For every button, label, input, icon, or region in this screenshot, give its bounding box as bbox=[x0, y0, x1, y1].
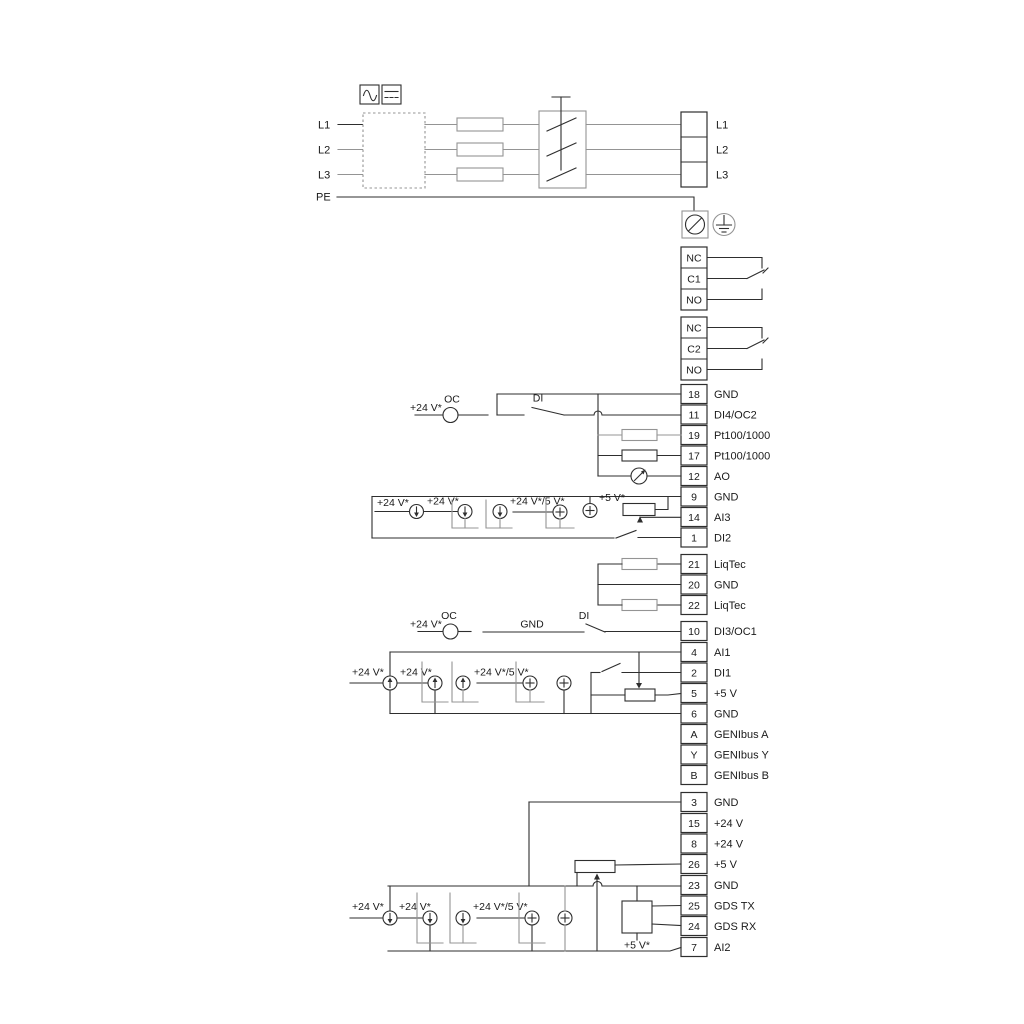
terminal-row: AGENIbus A bbox=[681, 725, 769, 744]
fuse-symbols bbox=[425, 118, 539, 181]
terminal-number: Y bbox=[690, 750, 697, 762]
gds-sensor-box: +5 V* bbox=[622, 886, 681, 952]
wire bbox=[655, 497, 668, 510]
terminal-row: 10DI3/OC1 bbox=[681, 622, 757, 641]
supply-label: +24 V* bbox=[352, 901, 384, 913]
power-right-label-l3: L3 bbox=[716, 170, 728, 182]
supply-label: +5 V* bbox=[599, 492, 625, 504]
potentiometer-symbol bbox=[591, 652, 681, 701]
power-output-wires bbox=[586, 125, 681, 175]
terminal-label: DI4/OC2 bbox=[714, 410, 757, 422]
terminal-label: GND bbox=[714, 492, 739, 504]
relay2-nc: NC bbox=[686, 323, 702, 335]
terminal-row: 25GDS TX bbox=[681, 896, 755, 915]
terminal-number: 5 bbox=[691, 688, 697, 700]
terminal-group-2: 10DI3/OC1 4AI1 2DI1 5+5 V 6GND AGENIbus … bbox=[681, 622, 769, 785]
terminal-number: 11 bbox=[689, 410, 700, 422]
terminal-number: 4 bbox=[691, 647, 697, 659]
terminal-number: 22 bbox=[688, 600, 700, 612]
relay1-no: NO bbox=[686, 295, 702, 307]
terminal-label: GDS RX bbox=[714, 921, 757, 933]
current-source-down-icon bbox=[423, 911, 437, 925]
current-source-plus-icon bbox=[525, 911, 539, 925]
ac-icon bbox=[360, 85, 379, 104]
oc-label: OC bbox=[444, 394, 460, 406]
relay1-c1: C1 bbox=[687, 274, 701, 286]
relay2-changeover-icon bbox=[708, 328, 768, 370]
analog-meter-icon bbox=[631, 468, 647, 484]
liqtec-sensor-wiring bbox=[598, 559, 681, 611]
supply-label: +24 V* bbox=[427, 496, 459, 508]
relay2-c2: C2 bbox=[687, 344, 701, 356]
current-source-plus-icon bbox=[558, 911, 572, 925]
terminal-row: 18GND bbox=[681, 385, 739, 404]
terminal-row: 6GND bbox=[681, 704, 739, 723]
terminal-number: 9 bbox=[691, 492, 697, 504]
terminal-number: 20 bbox=[688, 580, 700, 592]
terminal-label: DI2 bbox=[714, 533, 731, 545]
terminal-row: 2DI1 bbox=[681, 663, 731, 682]
terminal-number: 18 bbox=[688, 389, 700, 401]
di-label: DI bbox=[579, 610, 590, 622]
terminal-label: DI3/OC1 bbox=[714, 626, 757, 638]
terminal-row: 4AI1 bbox=[681, 643, 731, 662]
terminal-number: 3 bbox=[691, 797, 697, 809]
terminal-label: Pt100/1000 bbox=[714, 451, 770, 463]
wiring-diagram: L1 L2 L3 PE bbox=[0, 0, 1024, 1024]
supply-label: +24 V* bbox=[377, 497, 409, 509]
terminal-label: GDS TX bbox=[714, 901, 755, 913]
power-right-label-l1: L1 bbox=[716, 120, 728, 132]
relay2-no: NO bbox=[686, 365, 702, 377]
power-left-label-l3: L3 bbox=[318, 170, 330, 182]
terminal-label: AI1 bbox=[714, 647, 731, 659]
terminal-number: 17 bbox=[688, 451, 700, 463]
relay-2-block: NC C2 NO bbox=[681, 317, 768, 380]
wire bbox=[564, 411, 681, 415]
terminal-label: GND bbox=[714, 797, 739, 809]
earth-ground-icon bbox=[713, 214, 735, 236]
terminal-row: 5+5 V bbox=[681, 684, 738, 703]
relay1-nc: NC bbox=[686, 253, 702, 265]
terminal-number: 1 bbox=[691, 533, 697, 545]
supply-label: +5 V* bbox=[624, 940, 650, 952]
terminal-label: +5 V bbox=[714, 688, 738, 700]
emc-filter-box bbox=[360, 85, 425, 188]
terminal-row: 17Pt100/1000 bbox=[681, 446, 770, 465]
current-source-plus-icon bbox=[583, 504, 597, 518]
terminal-label: +5 V bbox=[714, 859, 738, 871]
terminal-number: 15 bbox=[688, 818, 700, 830]
potentiometer-symbol bbox=[623, 504, 655, 523]
terminal-row: 14AI3 bbox=[681, 508, 731, 527]
current-source-plus-icon bbox=[553, 505, 567, 519]
terminal-number: 2 bbox=[691, 668, 697, 680]
terminal-row: 19Pt100/1000 bbox=[681, 426, 770, 445]
terminal-row: 8+24 V bbox=[681, 834, 744, 853]
group3-wiring: +24 V* +24 V* +24 V*/5 V* bbox=[350, 802, 681, 952]
terminal-label: GENIbus Y bbox=[714, 750, 769, 762]
pt100-sensor-icon bbox=[622, 450, 657, 461]
terminal-number: 24 bbox=[688, 921, 700, 933]
supply-label: +24 V* bbox=[410, 619, 442, 631]
switch-contact-icon bbox=[532, 408, 564, 416]
terminal-number: 26 bbox=[688, 859, 700, 871]
terminal-row: 23GND bbox=[681, 876, 739, 895]
terminal-number: 12 bbox=[688, 471, 700, 483]
current-source-up-icon bbox=[428, 676, 442, 690]
terminal-label: +24 V bbox=[714, 818, 744, 830]
liqtec-group: 21LiqTec 20GND 22LiqTec bbox=[598, 555, 746, 615]
terminal-label: Pt100/1000 bbox=[714, 430, 770, 442]
terminal-label: GENIbus A bbox=[714, 729, 769, 741]
terminal-row: 24GDS RX bbox=[681, 917, 757, 936]
terminal-row: 22LiqTec bbox=[681, 596, 746, 615]
wire bbox=[388, 882, 681, 887]
power-right-label-l2: L2 bbox=[716, 145, 728, 157]
terminal-number: 8 bbox=[691, 839, 697, 851]
terminal-number: A bbox=[690, 729, 697, 741]
supply-label: +24 V*/5 V* bbox=[474, 667, 529, 679]
terminal-number: B bbox=[690, 770, 697, 782]
dc-icon bbox=[382, 85, 401, 104]
terminal-label: AI2 bbox=[714, 942, 731, 954]
terminal-row: BGENIbus B bbox=[681, 766, 769, 785]
pe-screw-terminal-icon bbox=[682, 211, 708, 238]
terminal-label: LiqTec bbox=[714, 600, 746, 612]
pt100-sensor-icon bbox=[622, 430, 657, 441]
current-source-down-icon bbox=[456, 911, 470, 925]
supply-label: +24 V* bbox=[400, 667, 432, 679]
terminal-row: 1DI2 bbox=[681, 528, 731, 547]
power-left-label-l1: L1 bbox=[318, 120, 330, 132]
current-source-down-icon bbox=[383, 911, 397, 925]
power-section: L1 L2 L3 PE bbox=[316, 85, 735, 238]
terminal-label: GENIbus B bbox=[714, 770, 769, 782]
power-left-label-l2: L2 bbox=[318, 145, 330, 157]
terminal-number: 6 bbox=[691, 709, 697, 721]
supply-label: +24 V* bbox=[399, 901, 431, 913]
terminal-group-1: 18GND 11DI4/OC2 19Pt100/1000 17Pt100/100… bbox=[681, 385, 770, 548]
current-source-up-icon bbox=[383, 676, 397, 690]
main-disconnect-switch bbox=[539, 97, 586, 188]
gnd-label: GND bbox=[520, 619, 544, 631]
terminal-number: 23 bbox=[688, 880, 700, 892]
relay-1-block: NC C1 NO bbox=[681, 247, 768, 310]
terminal-row: 12AO bbox=[681, 467, 730, 486]
terminal-row: 11DI4/OC2 bbox=[681, 405, 757, 424]
current-source-down-icon bbox=[410, 505, 424, 519]
terminal-row: 7AI2 bbox=[681, 938, 731, 957]
terminal-label: LiqTec bbox=[714, 559, 746, 571]
oc-label: OC bbox=[441, 610, 457, 622]
group2-wiring: +24 V* OC GND DI +24 V* +24 V* +24 V*/5 … bbox=[350, 610, 681, 714]
power-left-label-pe: PE bbox=[316, 192, 331, 204]
current-source-down-icon bbox=[458, 505, 472, 519]
switch-contact-icon bbox=[616, 531, 636, 539]
terminal-number: 10 bbox=[688, 626, 700, 638]
switch-contact-icon bbox=[602, 664, 620, 672]
terminal-row: 20GND bbox=[681, 575, 739, 594]
current-source-up-icon bbox=[456, 676, 470, 690]
terminal-group-3: 3GND 15+24 V 8+24 V 26+5 V 23GND 25GDS T… bbox=[681, 793, 757, 957]
liqtec-sensor-icon bbox=[622, 600, 657, 611]
supply-label: +24 V* bbox=[410, 402, 442, 414]
terminal-number: 7 bbox=[691, 942, 697, 954]
terminal-row: 26+5 V bbox=[681, 855, 738, 874]
supply-label: +24 V* bbox=[352, 667, 384, 679]
power-terminal-block: L1 L2 L3 bbox=[681, 112, 728, 187]
terminal-label: AI3 bbox=[714, 512, 731, 524]
terminal-row: 3GND bbox=[681, 793, 739, 812]
current-source-plus-icon bbox=[557, 676, 571, 690]
di-label: DI bbox=[533, 393, 544, 405]
terminal-row: YGENIbus Y bbox=[681, 745, 769, 764]
diagram-canvas: L1 L2 L3 PE bbox=[0, 0, 1024, 1024]
open-collector-icon bbox=[443, 624, 458, 639]
terminal-row: 15+24 V bbox=[681, 814, 744, 833]
terminal-number: 19 bbox=[688, 430, 700, 442]
terminal-number: 14 bbox=[688, 512, 700, 524]
terminal-label: GND bbox=[714, 880, 739, 892]
group1-wiring: +24 V* OC DI bbox=[410, 393, 681, 485]
terminal-label: AO bbox=[714, 471, 730, 483]
open-collector-icon bbox=[443, 408, 458, 423]
terminal-label: GND bbox=[714, 709, 739, 721]
terminal-row: 21LiqTec bbox=[681, 555, 746, 574]
current-source-plus-icon bbox=[523, 676, 537, 690]
terminal-label: +24 V bbox=[714, 839, 744, 851]
terminal-label: GND bbox=[714, 389, 739, 401]
ai3-subcircuit: +24 V* +24 V* +24 V*/5 V* +5 V* bbox=[372, 492, 681, 538]
switch-contact-icon bbox=[586, 624, 605, 632]
terminal-row: 9GND bbox=[681, 487, 739, 506]
terminal-number: 25 bbox=[688, 901, 700, 913]
terminal-label: DI1 bbox=[714, 668, 731, 680]
liqtec-sensor-icon bbox=[622, 559, 657, 570]
terminal-label: GND bbox=[714, 580, 739, 592]
current-source-down-icon bbox=[493, 505, 507, 519]
terminal-number: 21 bbox=[688, 559, 700, 571]
relay1-changeover-icon bbox=[708, 258, 768, 300]
